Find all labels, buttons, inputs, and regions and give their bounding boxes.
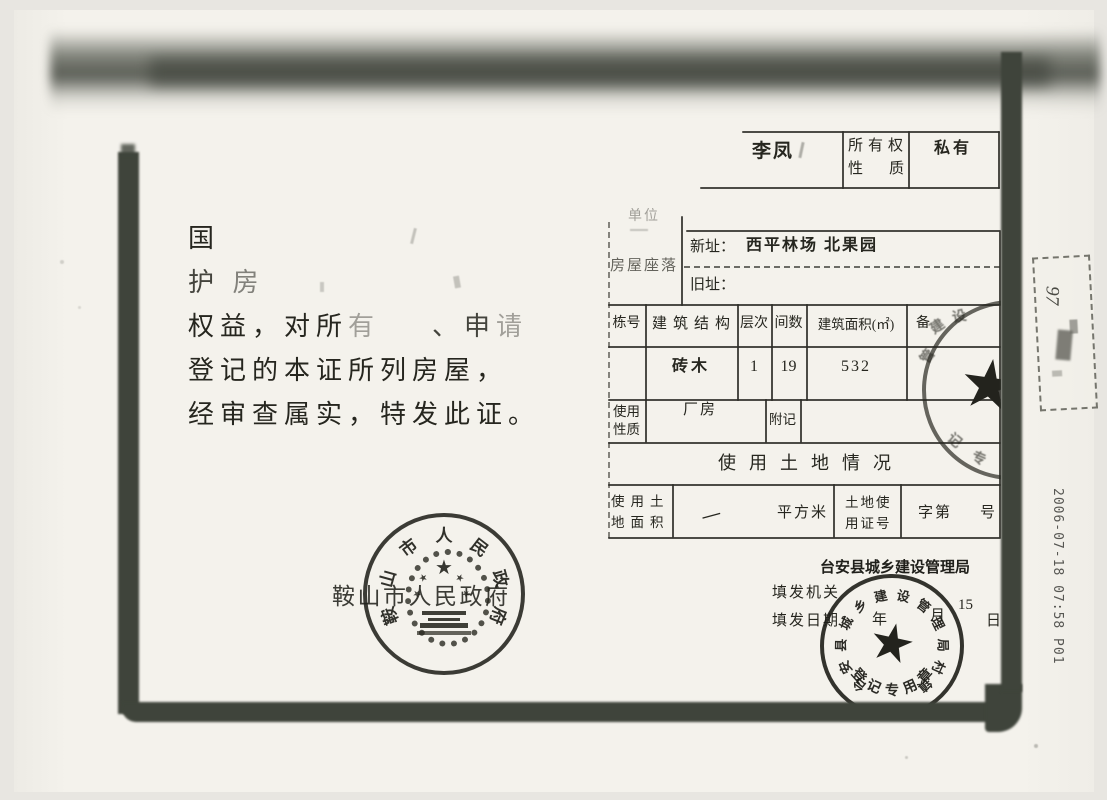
fax-margin-box: 97 <box>1032 255 1098 412</box>
header-building-no: 栋号 <box>608 316 645 332</box>
date-day-label: 日 <box>986 613 1001 630</box>
header-rooms: 间数 <box>771 316 806 332</box>
owner-name: 李凤 <box>752 141 794 163</box>
land-cert-suffix: 号 <box>980 505 995 522</box>
ownership-label-line2: 性质 <box>848 161 930 178</box>
edge-seal-clip: ★ 建设管记专 <box>880 290 1001 490</box>
land-area-label-line1: 使用土 <box>611 494 670 510</box>
land-area-label-line2: 地面积 <box>611 515 670 531</box>
national-emblem-icon: ★ ★ ★ ★ ★ <box>403 547 485 643</box>
cell-rooms: 19 <box>771 358 806 376</box>
land-cert-prefix: 字第 <box>918 505 952 522</box>
location-label: 房屋座落 <box>610 258 678 275</box>
usage-value: 厂房 <box>683 402 717 419</box>
frame-left-bar-speckle <box>121 144 135 156</box>
preamble-line-2a: 护 <box>188 268 220 297</box>
preamble-line-3c: 、申 <box>432 312 496 341</box>
preamble-line-3d: 请 <box>496 312 528 341</box>
ownership-label-line1: 所有权 <box>848 138 908 155</box>
fax-margin-number: 97 <box>1040 286 1062 306</box>
usage-note-label: 附记 <box>765 412 800 428</box>
date-day-value: 15 <box>958 597 973 614</box>
ownership-value: 私有 <box>908 140 998 158</box>
new-address-label: 新址： <box>690 239 735 256</box>
scanned-certificate-page: 国 护 房 权益，对所有、申请 登记的本证所列房屋， 经审查属实，特发此证。 李… <box>0 0 1107 800</box>
header-structure: 建筑结构 <box>645 316 737 333</box>
preamble-line-2b: 房 <box>233 268 265 297</box>
cell-structure: 砖木 <box>645 358 737 376</box>
preamble-line-3b: 有 <box>348 312 380 341</box>
usage-label-line2: 性质 <box>608 422 645 438</box>
cell-floors: 1 <box>737 358 771 376</box>
land-unit: 平方米 <box>777 505 828 522</box>
preamble-line-4: 登记的本证所列房屋， <box>188 356 508 385</box>
unit-label: 单位 <box>628 209 660 225</box>
edge-seal-fragments: 建设管记专 <box>880 290 1001 490</box>
registration-seal: 台安县城乡建设管理局村镇 登记专用章 ★ <box>820 574 964 718</box>
land-cert-label-line2: 用证号 <box>845 516 892 532</box>
header-floors: 层次 <box>737 316 771 332</box>
preamble-line-1: 国 <box>188 224 220 253</box>
preamble-line-3a: 权益，对所 <box>188 312 348 341</box>
frame-left-bar <box>118 152 139 714</box>
usage-label-line1: 使用 <box>608 404 645 420</box>
land-cert-label-line1: 土地使 <box>845 495 892 511</box>
preamble-line-5: 经审查属实，特发此证。 <box>188 400 540 429</box>
photocopy-top-smudge-core <box>150 58 1050 86</box>
old-address-label: 旧址： <box>690 277 735 294</box>
fax-timestamp: 2006-07-18 07:58 P01 <box>1049 488 1065 678</box>
government-seal: 鞍山市人民政府 ★ ★ ★ ★ ★ <box>363 513 525 675</box>
frame-bottom-bar <box>122 702 1002 722</box>
new-address-value: 西平林场 北果园 <box>746 237 878 255</box>
frame-right-bar <box>1001 52 1022 692</box>
